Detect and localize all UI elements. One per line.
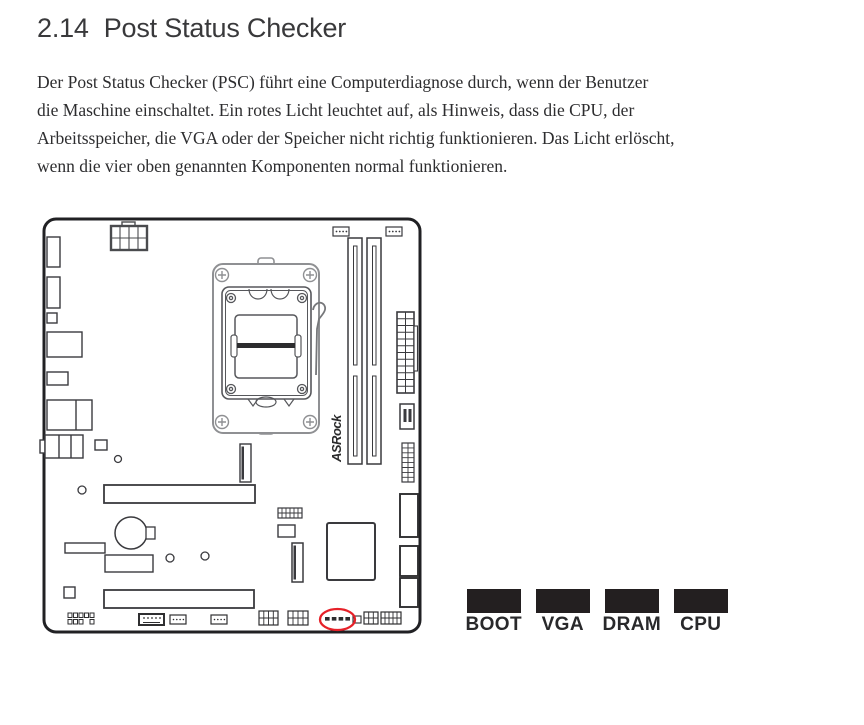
intro-line: Der Post Status Checker (PSC) führt eine…: [37, 68, 827, 96]
led-box-dram: [605, 589, 659, 613]
power-connector-8pin: [111, 222, 147, 250]
intro-paragraph: Der Post Status Checker (PSC) führt eine…: [37, 68, 827, 180]
intro-line: wenn die vier oben genannten Komponenten…: [37, 152, 827, 180]
section-number: 2.14: [37, 12, 89, 44]
led-label-vga: VGA: [542, 617, 584, 632]
usb3-header: [400, 404, 414, 429]
led-box-boot: [467, 589, 521, 613]
front-panel-header: [402, 443, 414, 482]
legend-item-vga: VGA: [536, 589, 590, 632]
asrock-logo: ASRock: [329, 414, 344, 463]
led-box-cpu: [674, 589, 728, 613]
led-label-boot: BOOT: [466, 617, 523, 632]
socket-load-bar: [237, 343, 295, 348]
chipset: [327, 523, 375, 580]
legend-item-boot: BOOT: [467, 589, 521, 632]
led-box-vga: [536, 589, 590, 613]
motherboard-diagram: ASRock: [38, 213, 426, 637]
psc-led-legend: BOOT VGA DRAM CPU: [467, 589, 728, 632]
section-heading: 2.14 Post Status Checker: [37, 12, 346, 44]
atx-power-24pin: [397, 312, 418, 393]
led-label-dram: DRAM: [602, 617, 661, 632]
cpu-socket: [213, 258, 325, 434]
manual-page: 2.14 Post Status Checker Der Post Status…: [0, 0, 864, 725]
intro-line: die Maschine einschaltet. Ein rotes Lich…: [37, 96, 827, 124]
legend-item-dram: DRAM: [605, 589, 659, 632]
intro-line: Arbeitsspeicher, die VGA oder der Speich…: [37, 124, 827, 152]
led-label-cpu: CPU: [680, 617, 721, 632]
legend-item-cpu: CPU: [674, 589, 728, 632]
usb-pin-header: [278, 508, 302, 518]
page-title: Post Status Checker: [104, 12, 346, 44]
sata-ports: [400, 494, 418, 607]
